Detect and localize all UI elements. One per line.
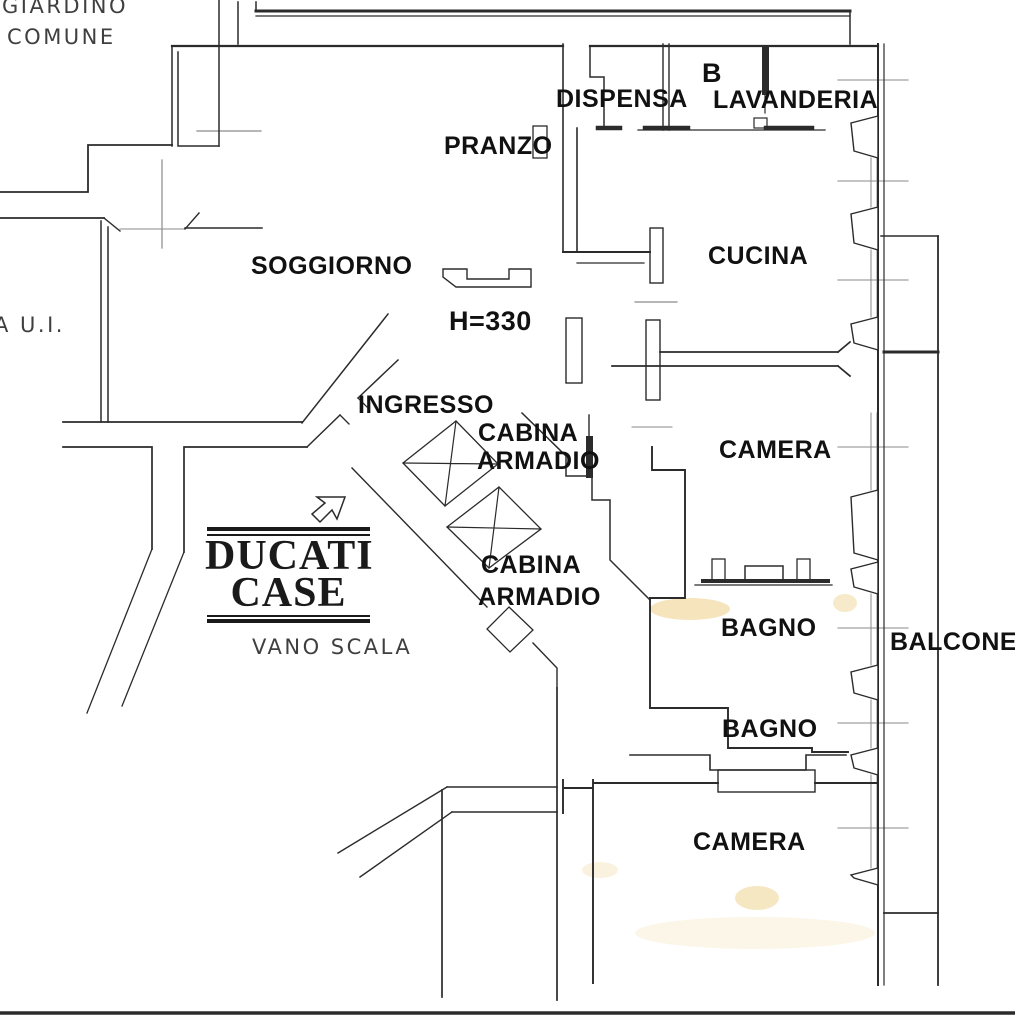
watermark-line2: CASE — [205, 575, 372, 612]
highlighter-marks — [582, 594, 875, 949]
adjacent-structures — [172, 0, 850, 146]
unit-reference-label: A U.I. — [0, 312, 65, 338]
room-label-cabina1-line1: CABINA — [478, 420, 578, 448]
room-label-soggiorno: SOGGIORNO — [251, 253, 412, 281]
stairwell-label: VANO SCALA — [252, 634, 412, 660]
room-label-cucina: CUCINA — [708, 243, 808, 271]
watermark-rule-bottom-heavy — [207, 619, 370, 623]
room-label-ingresso: INGRESSO — [358, 392, 494, 420]
garden-label-line2: COMUNE — [7, 24, 116, 50]
room-label-cabina2-line2: ARMADIO — [478, 584, 601, 612]
room-label-bagno1: BAGNO — [721, 615, 817, 643]
room-label-bagno2: BAGNO — [722, 716, 818, 744]
room-label-balcone: BALCONE — [890, 629, 1015, 657]
room-label-cabina1-line2: ARMADIO — [477, 448, 600, 476]
room-label-camera1: CAMERA — [719, 437, 832, 465]
balcony-walls — [881, 236, 938, 985]
room-label-dispensa: DISPENSA — [556, 86, 688, 114]
garden-label-line1: GIARDINO — [2, 0, 128, 19]
living-room-counter-symbol — [443, 269, 531, 287]
watermark-rule-top-heavy — [207, 527, 370, 531]
ceiling-height-label: H=330 — [449, 307, 532, 337]
agency-watermark: DUCATI CASE — [205, 527, 372, 623]
watermark-rule-bottom-light — [207, 615, 370, 617]
entrance-arrow-icon — [312, 497, 345, 522]
room-label-camera2: CAMERA — [693, 829, 806, 857]
boiler-label: B — [702, 59, 722, 89]
room-label-lavanderia: LAVANDERIA — [713, 87, 878, 115]
room-label-pranzo: PRANZO — [444, 133, 553, 161]
window-shutter-symbols — [851, 116, 878, 885]
room-label-cabina2-line1: CABINA — [481, 552, 581, 580]
floor-plan-page: GIARDINO COMUNE A U.I. VANO SCALA DISPEN… — [0, 0, 1015, 1024]
bathroom-vanity-symbol — [695, 559, 832, 585]
entrance-corridor-walls — [302, 314, 650, 688]
